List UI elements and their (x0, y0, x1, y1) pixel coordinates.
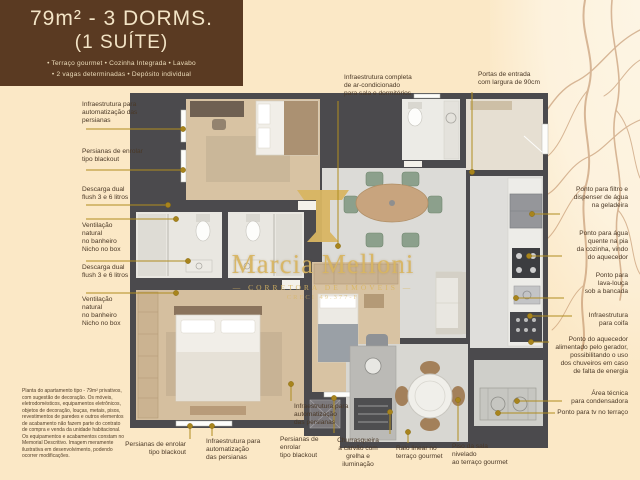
annotation-air-conditioning: Infraestrutura completa de ar-condiciona… (344, 74, 454, 98)
annotation-bathroom-ventilation-2: Ventilação natural no banheiro Nicho no … (82, 296, 178, 328)
annotation-blinds-infra-left: Infraestrutura para automatização das pe… (82, 101, 178, 125)
annotation-hot-water-sink: Ponto para água quente na pia da cozinha… (550, 230, 628, 262)
annotation-level-floor: Piso da sala nivelado ao terraço gourmet (452, 443, 516, 467)
features-line-2: • 2 vagas determinadas • Depósito indivi… (0, 69, 243, 80)
features-line-1: • Terraço gourmet • Cozinha Integrada • … (0, 58, 243, 69)
annotation-bathroom-ventilation-1: Ventilação natural no banheiro Nicho no … (82, 222, 178, 254)
annotation-fridge-water: Ponto para filtro e dispenser de água na… (550, 186, 628, 210)
annotation-technical-area: Área técnica para condensadora (550, 390, 628, 406)
annotation-blackout-blinds-left: Persianas de enrolar tipo blackout (82, 148, 178, 164)
legal-disclaimer: Planta do apartamento tipo - 79m² privat… (22, 388, 126, 460)
floor-plan-page: Marcia Melloni — CORRETORA DE IMÓVEIS — … (0, 0, 640, 480)
annotation-blackout-blinds-bottom-1: Persianas de enrolar tipo blackout (124, 441, 186, 457)
annotation-linear-drain: Ralo linear no terraço gourmet (396, 445, 451, 461)
annotation-terrace-tv: Ponto para tv no terraço (538, 409, 628, 417)
annotation-water-heater-generator: Ponto do aquecedor alimentado pelo gerad… (538, 336, 628, 376)
page-title: 79m² - 3 DORMS. (0, 7, 243, 31)
annotation-dual-flush-1: Descarga dual flush 3 e 6 litros (82, 186, 178, 202)
annotation-entry-door: Portas de entrada com largura de 90cm (478, 71, 578, 87)
annotation-blinds-infra-bottom-2: Infraestrutura para automatização das pe… (294, 403, 350, 427)
annotation-range-hood: Infraestrutura para coifa (550, 312, 628, 328)
annotation-barbecue: Churrasqueira a carvão com grelha e ilum… (330, 437, 386, 469)
page-subtitle: (1 SUÍTE) (0, 32, 243, 54)
annotation-blinds-infra-bottom-1: Infraestrutura para automatização das pe… (206, 438, 268, 462)
annotation-dishwasher: Ponto para lava-louça sob a bancada (550, 272, 628, 296)
title-block: 79m² - 3 DORMS. (1 SUÍTE) • Terraço gour… (0, 0, 243, 86)
annotation-dual-flush-2: Descarga dual flush 3 e 6 litros (82, 264, 178, 280)
